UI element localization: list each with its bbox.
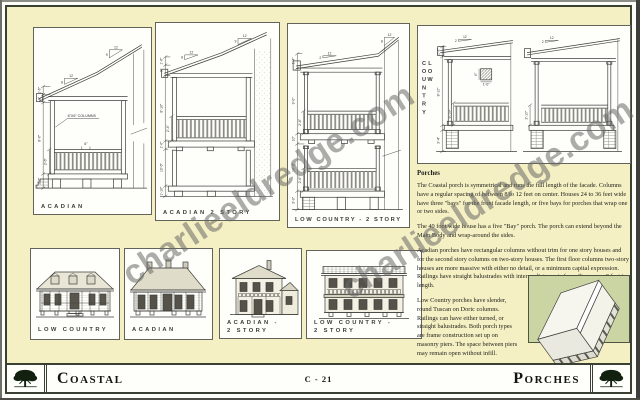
publisher-logo-right — [590, 365, 630, 392]
article-paragraph: The 40 foot wide house has a five "Bay" … — [417, 223, 630, 241]
slope-label: 8 — [61, 80, 63, 84]
lowcountry-section-drawings: 12 2 12 2 6" 1'-0" 1'-2" 8'-10" 2'-10" 3… — [418, 26, 630, 163]
slope-label: 9 — [234, 40, 236, 44]
dimension-label: 10'-0" — [292, 162, 296, 172]
dimension-label: 6" — [84, 142, 88, 146]
dimension-label: 10'-6" — [160, 162, 164, 172]
dimension-label: 8'-10" — [160, 103, 164, 113]
dimension-label: 6" — [474, 72, 478, 76]
slope-label: 12 — [189, 50, 193, 54]
footer-bar: Coastal C - 21 Porches — [7, 363, 630, 392]
panel-label: ACADIAN — [132, 327, 176, 335]
page-frame: 12 8 12 9 6"X6" COLUMNS 6" 1'-6" 8" 8'-6… — [5, 5, 632, 394]
scan-edge — [636, 0, 640, 400]
panel-elevation-lowcountry-2story: LOW COUNTRY -2 STORY — [306, 250, 422, 339]
slope-label: 8 — [181, 55, 183, 59]
elevation-drawing — [31, 249, 119, 339]
dimension-label: 1'-10" — [160, 186, 164, 196]
dimension-label: 2'-6" — [298, 176, 302, 184]
slope-label: 12 — [328, 51, 332, 55]
slope-label: 12 — [114, 46, 118, 50]
panel-elevation-acadian-2story: ACADIAN -2 STORY — [219, 248, 302, 339]
scan-edge — [0, 0, 2, 400]
panel-elevation-acadian: ACADIAN — [124, 248, 213, 340]
slope-label: 2 — [319, 56, 321, 60]
dimension-label: 2'-10" — [525, 110, 529, 120]
dimension-label: 8'-10" — [437, 87, 441, 97]
column-note: 6"X6" COLUMNS — [68, 114, 97, 118]
dimension-label: 2'-6" — [298, 118, 302, 126]
article-porches: Porches The Coastal porch is symmetrical… — [417, 170, 630, 370]
slope-label: 2 — [455, 39, 457, 43]
dimension-label: 1'-0" — [160, 141, 164, 149]
dimension-label: 10" — [292, 136, 296, 142]
elevation-drawing — [125, 249, 212, 339]
acadian-section-drawing: 12 8 12 9 6"X6" COLUMNS 6" 1'-6" 8" 8'-6… — [34, 28, 151, 214]
slope-label: 2 — [542, 40, 544, 44]
panel-acadian-section: 12 8 12 9 6"X6" COLUMNS 6" 1'-6" 8" 8'-6… — [33, 27, 152, 215]
dimension-label: 9" — [160, 68, 164, 72]
panel-label: ACADIAN — [41, 204, 85, 210]
dimension-label: 8" — [38, 96, 42, 100]
article-paragraph: The Coastal porch is symmetrical and run… — [417, 182, 630, 217]
chapter-title: Coastal — [57, 370, 123, 388]
dimension-label: 2'-6" — [44, 158, 48, 166]
section-title: Porches — [513, 370, 580, 388]
slope-label: 9 — [106, 53, 108, 57]
oak-tree-icon — [12, 368, 39, 389]
panel-lowcountry-sections: LOW COUNTRY — [417, 25, 631, 164]
slope-label: 12 — [69, 74, 73, 78]
slope-label: 12 — [550, 36, 554, 40]
porch-isometric-illustration — [524, 275, 630, 367]
publisher-logo-left — [7, 365, 47, 392]
article-heading: Porches — [417, 170, 630, 177]
scan-edge — [0, 0, 640, 2]
slope-label: 12 — [243, 34, 247, 38]
dimension-label: 1'-6" — [38, 86, 42, 94]
dimension-label: 1'-2" — [437, 47, 441, 55]
dimension-label: 8'-6" — [38, 134, 42, 142]
dimension-label: 3'-4" — [437, 136, 441, 144]
oak-tree-icon — [598, 368, 625, 389]
dimension-label: 9'-0" — [292, 97, 296, 105]
page-number: C - 21 — [305, 374, 333, 384]
dimension-label: 3'-0" — [292, 196, 296, 204]
lowcountry-2story-section-drawing: 12 2 12 8 1'-4" 9'-0" 2'-6" 10" 10'-0" 2… — [288, 24, 409, 227]
panel-label: LOW COUNTRY — [38, 327, 108, 335]
dimension-label: 1'-6" — [160, 57, 164, 65]
dimension-label: 2'-4" — [166, 124, 170, 132]
dimension-label: 2'-6" — [38, 177, 42, 185]
acadian-2story-section-drawing: 12 8 12 9 1'-6" 9" 8'-10" 2'-4" 1'-0" 10… — [156, 23, 279, 220]
slope-label: 12 — [388, 33, 392, 37]
panel-elevation-lowcountry: LOW COUNTRY — [30, 248, 120, 340]
dimension-label: 1'-4" — [292, 57, 296, 65]
panel-lowcountry-2story-section: 12 2 12 8 1'-4" 9'-0" 2'-6" 10" 10'-0" 2… — [287, 23, 410, 228]
porch-corner-isometric-drawing — [528, 278, 632, 374]
scanned-pattern-book-page: { "page": { "watermark_text": "charlieel… — [0, 0, 640, 400]
dimension-label: 1'-0" — [483, 82, 491, 86]
panel-acadian-2story-section: 12 8 12 9 1'-6" 9" 8'-10" 2'-4" 1'-0" 10… — [155, 22, 280, 221]
slope-label: 8 — [381, 39, 383, 43]
dimension-label: 2'-10" — [448, 109, 452, 119]
panel-label: ACADIAN -2 STORY — [227, 320, 279, 334]
slope-label: 12 — [463, 35, 467, 39]
panel-label: LOW COUNTRY -2 STORY — [314, 320, 392, 334]
panel-label: ACADIAN 2 STORY — [163, 210, 252, 216]
panel-label: LOW COUNTRY - 2 STORY — [295, 217, 402, 223]
